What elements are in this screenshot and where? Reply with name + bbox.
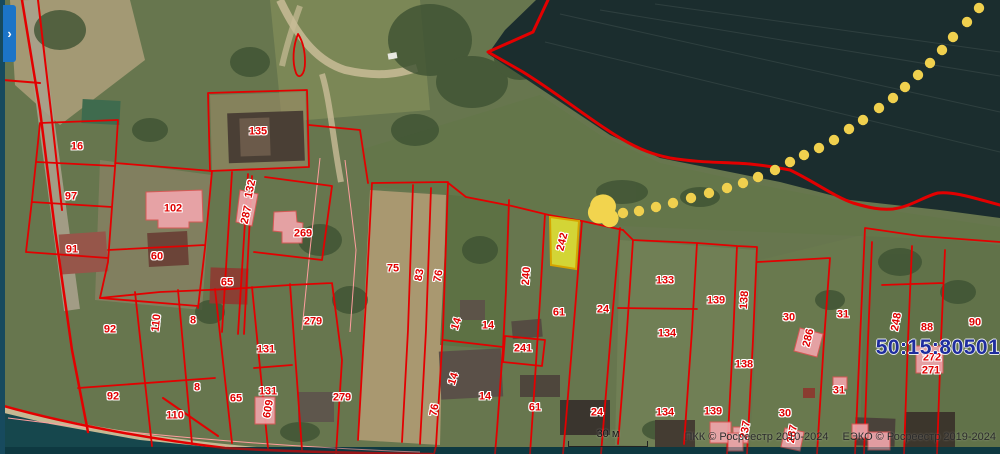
attribution-pkk: ПКК © Росреестр 2010-2024 [684,431,828,443]
parcel-label-110[interactable]: 110 [151,314,164,333]
chevron-right-icon: › [7,26,11,41]
parcel-label-241[interactable]: 241 [514,344,532,355]
panel-edge-sliver [0,0,5,454]
parcel-label-279[interactable]: 279 [333,393,351,404]
parcel-label-65[interactable]: 65 [230,394,242,405]
parcel-label-83[interactable]: 83 [414,268,427,282]
parcel-label-110[interactable]: 110 [166,411,184,422]
parcel-label-30[interactable]: 30 [779,409,791,420]
cadastral-quarter-label: 50:15:80501 [876,336,1000,360]
parcel-label-61[interactable]: 61 [553,308,565,319]
parcel-label-31[interactable]: 31 [833,386,845,397]
parcel-label-134[interactable]: 134 [658,329,676,340]
parcel-label-90[interactable]: 90 [969,318,981,329]
scale-bar-line [568,441,648,447]
map-render-layer [0,0,1000,454]
parcel-label-139[interactable]: 139 [704,407,722,418]
parcel-label-131[interactable]: 131 [257,345,275,356]
parcel-label-271[interactable]: 271 [922,366,940,377]
parcel-label-8[interactable]: 8 [194,383,200,394]
map-attribution: ПКК © Росреестр 2010-2024ЕЭКО © Росреест… [670,431,996,443]
parcel-label-138[interactable]: 138 [739,290,751,309]
parcel-label-76[interactable]: 76 [433,269,446,283]
parcel-label-14[interactable]: 14 [482,321,494,332]
parcel-label-60[interactable]: 60 [151,252,163,263]
parcel-label-138[interactable]: 138 [735,360,753,371]
parcel-label-30[interactable]: 30 [783,313,795,324]
parcel-label-279[interactable]: 279 [304,317,322,328]
parcel-label-92[interactable]: 92 [104,325,116,336]
parcel-label-97[interactable]: 97 [65,192,77,203]
parcel-label-24[interactable]: 24 [591,408,603,419]
parcel-label-16[interactable]: 16 [71,142,83,153]
parcel-label-133[interactable]: 133 [656,276,674,287]
parcel-label-135[interactable]: 135 [249,127,267,138]
attribution-eeko: ЕЭКО © Росреестр 2019-2024 [843,431,996,443]
parcel-label-31[interactable]: 31 [837,310,849,321]
parcel-label-76[interactable]: 76 [429,403,442,417]
parcel-label-75[interactable]: 75 [387,264,399,275]
parcel-label-8[interactable]: 8 [190,316,196,327]
parcel-label-131[interactable]: 131 [259,387,277,398]
parcel-label-24[interactable]: 24 [597,305,609,316]
map-canvas[interactable]: 1697102916065132287135269921108921108651… [0,0,1000,454]
parcel-label-269[interactable]: 269 [294,229,312,240]
scale-bar: 30 м [568,428,648,447]
parcel-label-92[interactable]: 92 [107,392,119,403]
parcel-label-65[interactable]: 65 [221,278,233,289]
parcel-label-134[interactable]: 134 [656,408,674,419]
scale-bar-label: 30 м [568,428,648,440]
parcel-label-91[interactable]: 91 [66,245,78,256]
parcel-label-88[interactable]: 88 [921,323,933,334]
parcel-label-61[interactable]: 61 [529,403,541,414]
parcel-label-139[interactable]: 139 [707,296,725,307]
parcel-label-14[interactable]: 14 [479,392,491,403]
panel-expand-button[interactable]: › [3,5,16,62]
parcel-label-102[interactable]: 102 [164,204,182,215]
parcel-label-240[interactable]: 240 [521,266,533,285]
